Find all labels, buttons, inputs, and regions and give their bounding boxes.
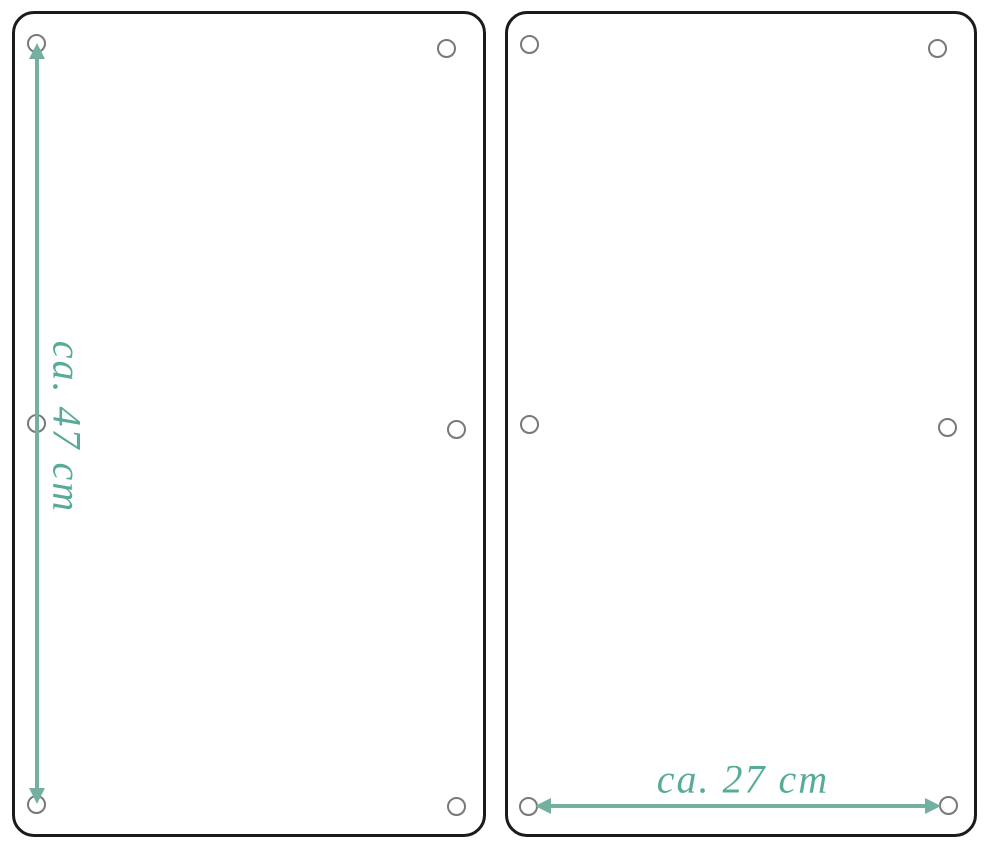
arrowhead-right-icon [925, 798, 941, 814]
mounting-hole-top-right [437, 39, 456, 58]
glass-panel-left: ca. 47 cm [12, 11, 486, 837]
product-dimensions-diagram: ca. 47 cm ca. 27 cm [0, 0, 984, 848]
mounting-hole-middle-right [938, 418, 957, 437]
width-dimension-line [549, 804, 927, 808]
mounting-hole-bottom-right [447, 797, 466, 816]
mounting-hole-top-left [520, 35, 539, 54]
height-dimension-line [35, 57, 39, 790]
mounting-hole-middle-right [447, 420, 466, 439]
mounting-hole-middle-left [520, 415, 539, 434]
width-dimension-label: ca. 27 cm [657, 756, 829, 803]
mounting-hole-top-right [928, 39, 947, 58]
mounting-hole-bottom-right [939, 796, 958, 815]
glass-panel-right: ca. 27 cm [505, 11, 977, 837]
arrowhead-down-icon [29, 788, 45, 804]
height-dimension-label: ca. 47 cm [44, 341, 91, 513]
